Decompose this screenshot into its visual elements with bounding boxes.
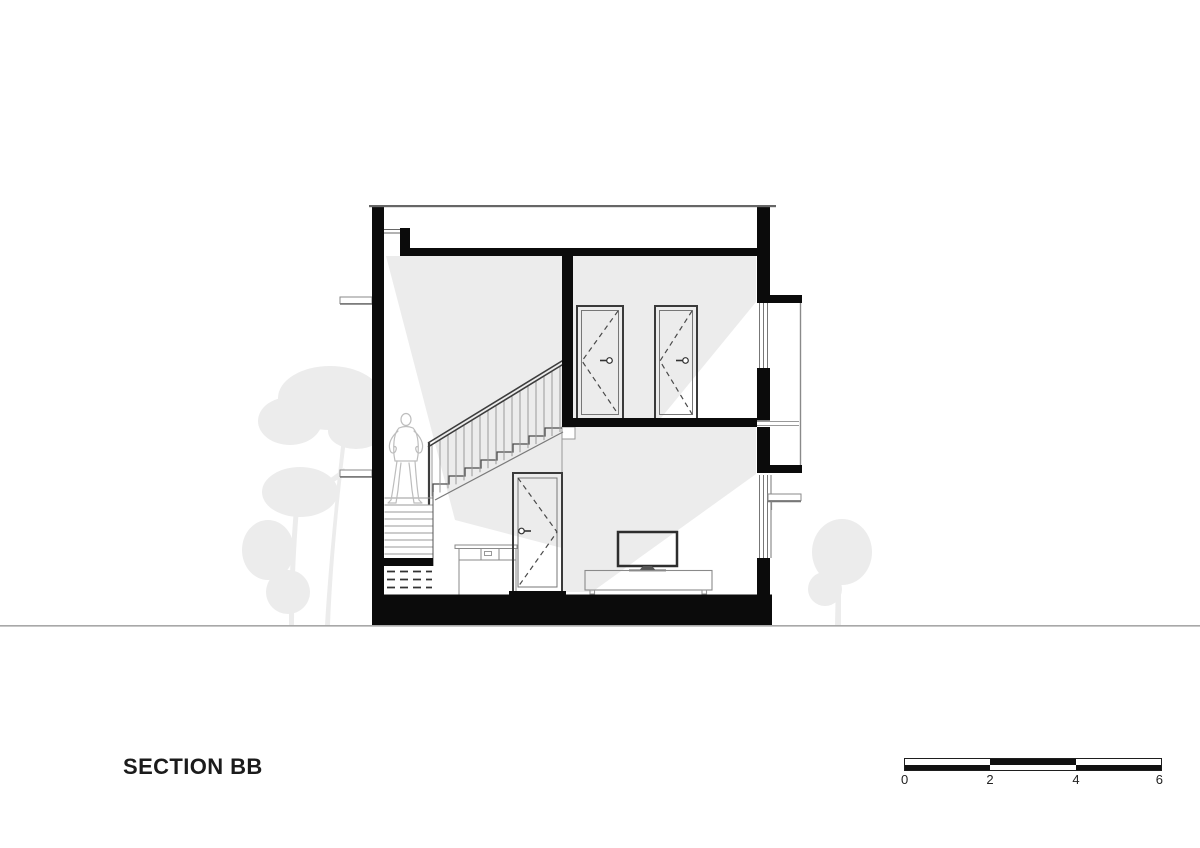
- window-lower-glazing: [760, 475, 772, 558]
- bay-floor-lines: [757, 422, 799, 426]
- right-wall-mid-b: [757, 427, 770, 465]
- ceiling-slab: [410, 248, 757, 256]
- scale-segment-1: [905, 759, 990, 770]
- right-wall-bottom: [757, 558, 770, 597]
- foundation-slab: [372, 595, 772, 626]
- person-figure: [388, 414, 423, 504]
- scale-segment-2: [990, 759, 1075, 770]
- left-wall: [372, 206, 384, 597]
- hidden-steps-dashed: [387, 572, 432, 588]
- door-handle: [607, 358, 613, 364]
- tree-group-left: [242, 366, 384, 625]
- door-handle: [519, 528, 525, 534]
- section-drawing: [0, 0, 1200, 848]
- window-upper-glazing: [760, 303, 768, 368]
- scale-tick-2: 2: [986, 772, 993, 787]
- scale-bar: [904, 758, 1162, 771]
- tree-group-right: [808, 519, 872, 625]
- cabinet-foot: [702, 590, 707, 594]
- understair-cabinet: [455, 545, 517, 597]
- scale-tick-4: 4: [1072, 772, 1079, 787]
- skylight-glazing: [384, 230, 401, 234]
- lower-flight-treads: [385, 498, 433, 554]
- exterior-ledge-right: [768, 494, 801, 501]
- scale-segment-3: [1076, 759, 1161, 770]
- bedroom-light-beam: [573, 256, 756, 418]
- right-wall-mid-a: [757, 368, 770, 421]
- ceiling-niche: [562, 427, 575, 439]
- bay-flange-bottom: [757, 465, 802, 473]
- door-handle: [683, 358, 689, 364]
- roof-line: [369, 205, 776, 207]
- understair-beam: [384, 558, 433, 566]
- right-wall-top: [757, 206, 770, 295]
- scale-tick-6: 6: [1156, 772, 1163, 787]
- scale-tick-0: 0: [901, 772, 908, 787]
- upper-floor-slab: [562, 418, 757, 427]
- partition-wall-upper: [562, 256, 573, 418]
- skylight-upstand: [400, 228, 410, 256]
- bay-flange-top: [757, 295, 802, 303]
- drawing-title: SECTION BB: [123, 754, 263, 780]
- architectural-drawing-canvas: SECTION BB 0 2 4 6: [0, 0, 1200, 848]
